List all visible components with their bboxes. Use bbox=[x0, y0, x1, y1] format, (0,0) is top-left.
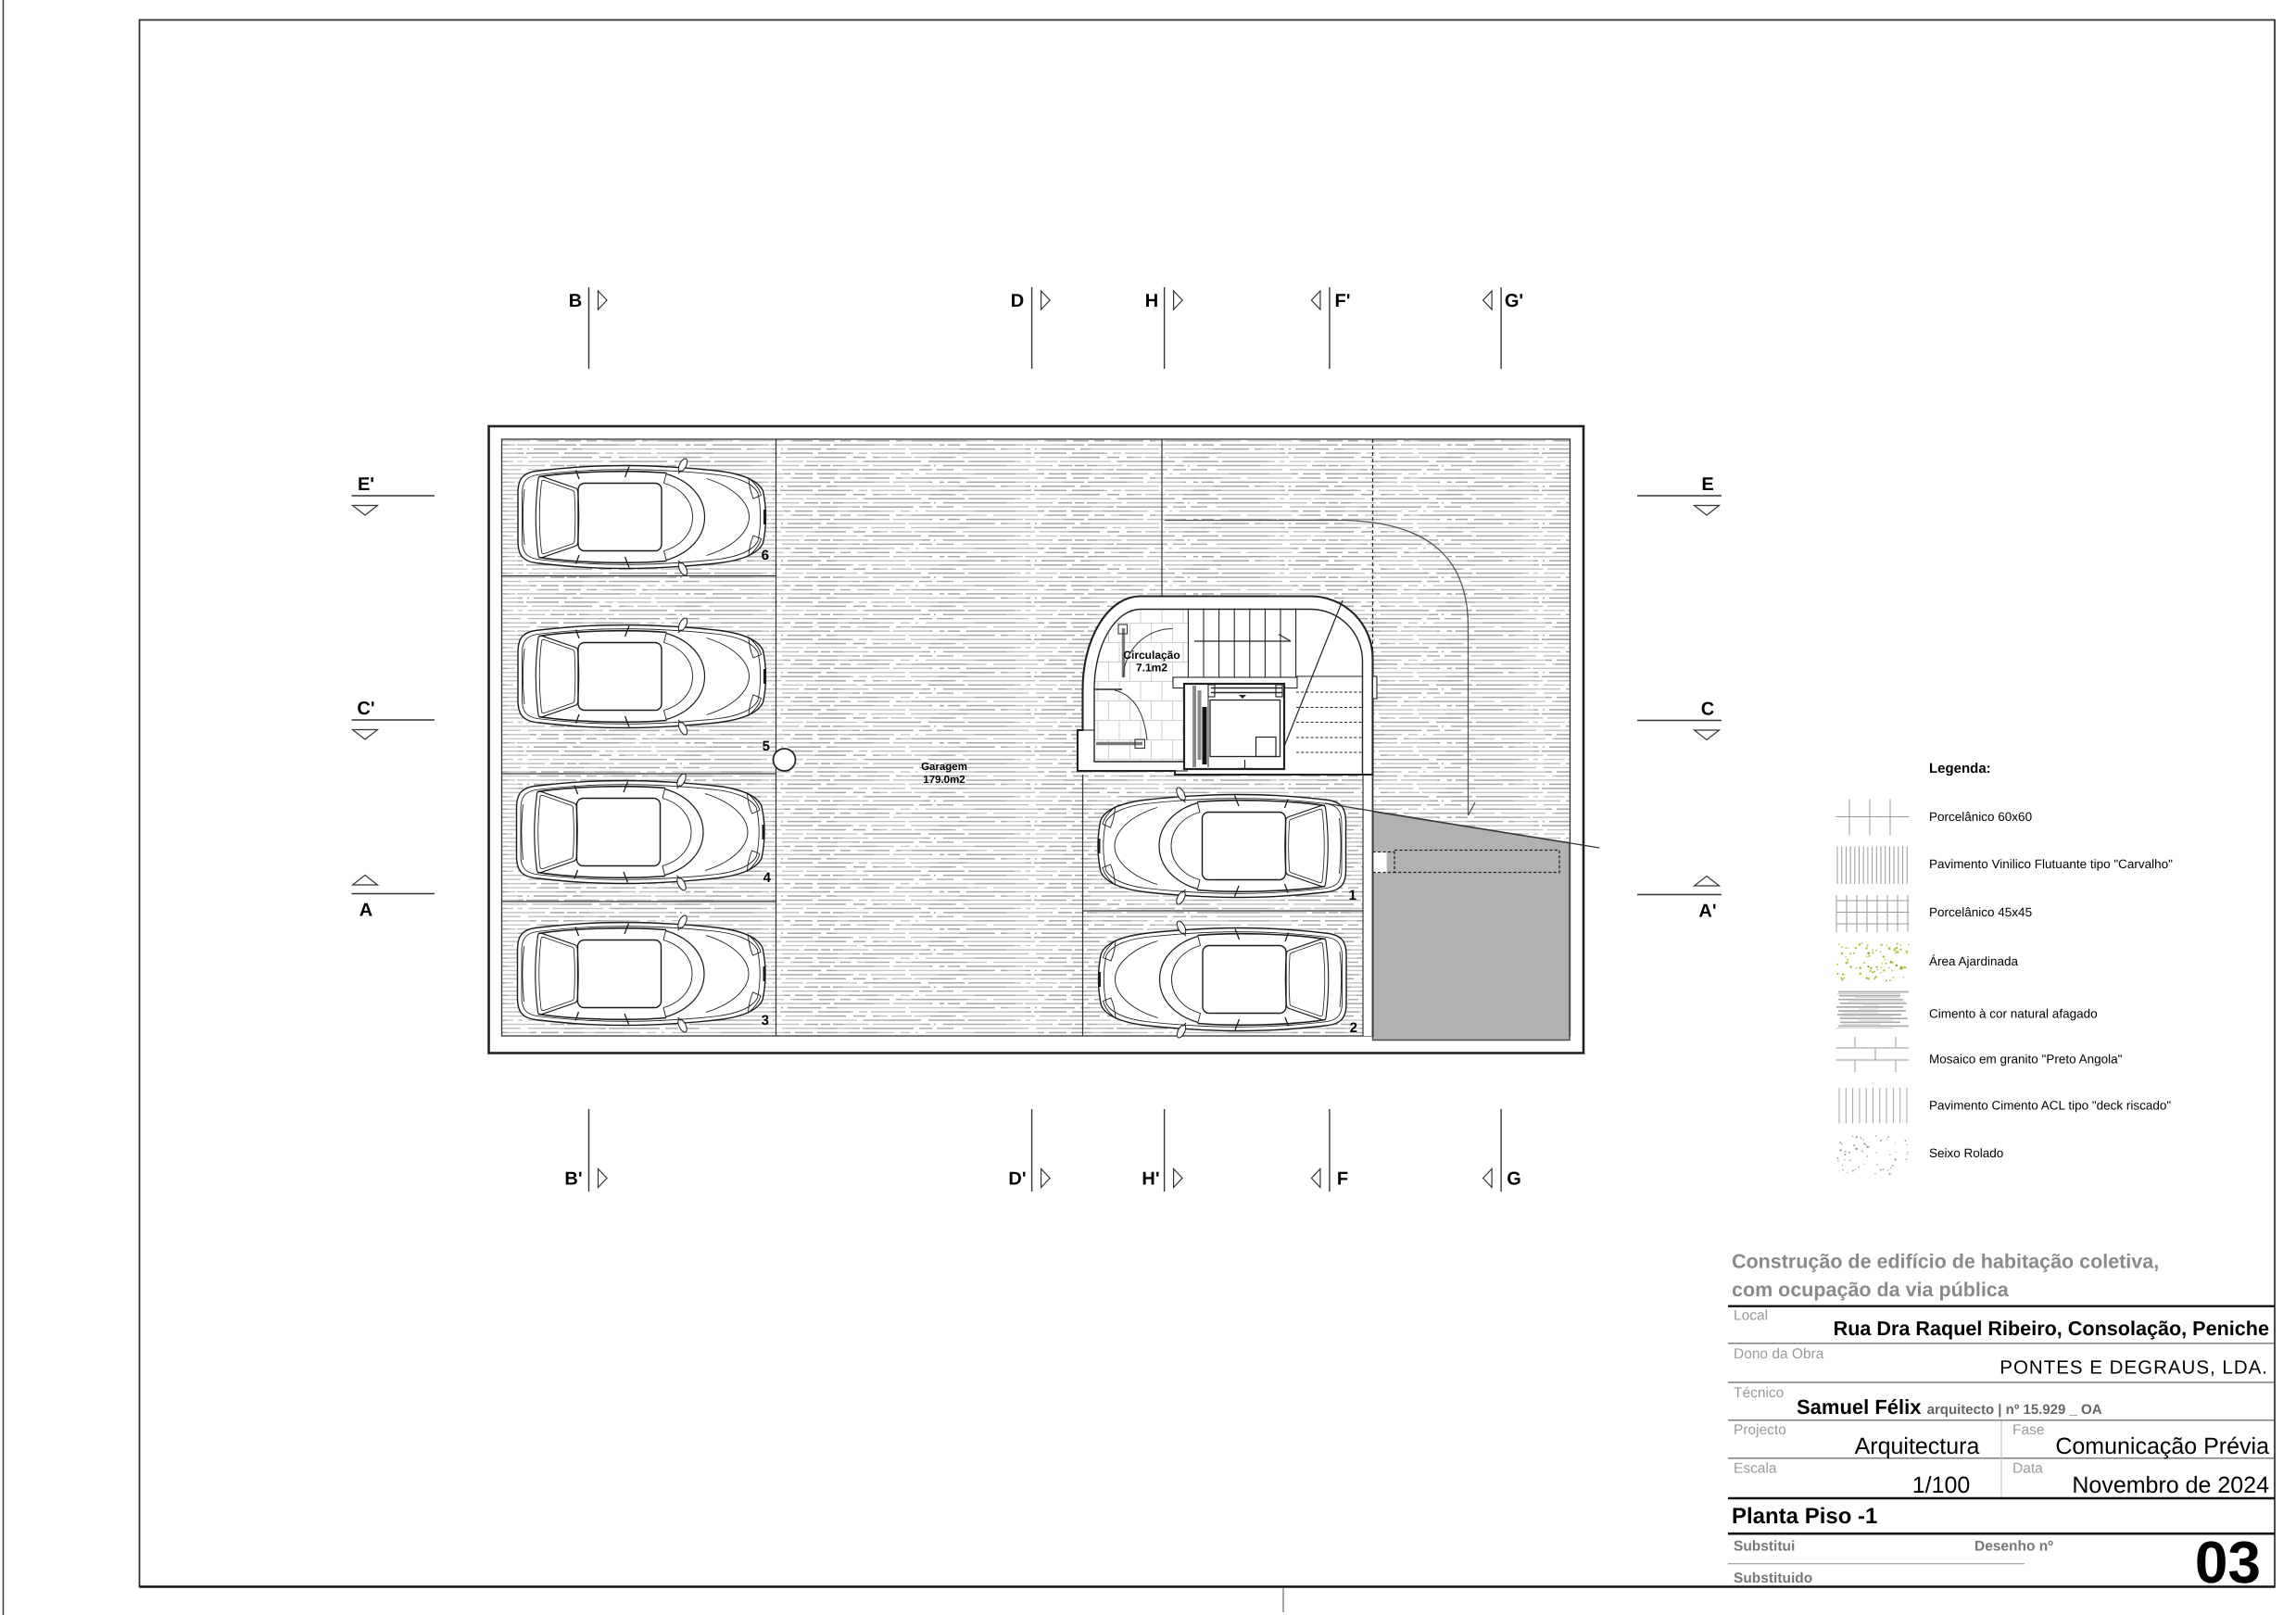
svg-text:Garagem: Garagem bbox=[921, 762, 967, 773]
svg-text:7.1m2: 7.1m2 bbox=[1136, 662, 1167, 675]
svg-text:Rua Dra Raquel Ribeiro, Consol: Rua Dra Raquel Ribeiro, Consolação, Peni… bbox=[1834, 1317, 2269, 1340]
svg-text:Comunicação Prévia: Comunicação Prévia bbox=[2055, 1433, 2269, 1459]
svg-text:F: F bbox=[1337, 1169, 1348, 1190]
svg-text:E: E bbox=[1701, 474, 1713, 495]
svg-text:B': B' bbox=[564, 1169, 582, 1190]
svg-text:Pavimento Cimento ACL tipo "de: Pavimento Cimento ACL tipo "deck riscado… bbox=[1929, 1099, 2171, 1113]
svg-text:Pavimento Vinilico Flutuante t: Pavimento Vinilico Flutuante tipo "Carva… bbox=[1929, 857, 2173, 871]
svg-text:Mosaico em granito "Preto Ango: Mosaico em granito "Preto Angola" bbox=[1929, 1053, 2123, 1066]
svg-text:E': E' bbox=[358, 474, 374, 495]
svg-text:Escala: Escala bbox=[1734, 1460, 1777, 1476]
svg-text:H': H' bbox=[1142, 1169, 1159, 1190]
svg-text:Dono da Obra: Dono da Obra bbox=[1734, 1346, 1824, 1362]
svg-text:Técnico: Técnico bbox=[1734, 1385, 1784, 1401]
svg-text:Local: Local bbox=[1734, 1308, 1768, 1324]
svg-text:Porcelânico 45x45: Porcelânico 45x45 bbox=[1929, 905, 2032, 919]
svg-text:179.0m2: 179.0m2 bbox=[923, 775, 965, 786]
svg-text:D': D' bbox=[1008, 1169, 1026, 1190]
svg-text:1: 1 bbox=[1349, 888, 1356, 903]
svg-text:Seixo Rolado: Seixo Rolado bbox=[1929, 1146, 2003, 1160]
svg-text:Construção de edifício de habi: Construção de edifício de habitação cole… bbox=[1732, 1251, 2159, 1273]
svg-text:G: G bbox=[1507, 1169, 1521, 1190]
svg-text:A': A' bbox=[1698, 902, 1716, 922]
svg-text:6: 6 bbox=[762, 548, 769, 563]
svg-text:F': F' bbox=[1335, 291, 1351, 311]
svg-text:Planta Piso -1: Planta Piso -1 bbox=[1732, 1504, 1877, 1529]
svg-text:5: 5 bbox=[763, 738, 770, 754]
svg-text:Novembro de 2024: Novembro de 2024 bbox=[2072, 1472, 2269, 1498]
svg-text:Data: Data bbox=[2012, 1460, 2043, 1476]
svg-text:Projecto: Projecto bbox=[1734, 1422, 1786, 1438]
svg-text:Cimento à cor natural afagado: Cimento à cor natural afagado bbox=[1929, 1007, 2098, 1021]
svg-text:Substituido: Substituido bbox=[1734, 1571, 1812, 1586]
svg-text:Legenda:: Legenda: bbox=[1929, 761, 1991, 776]
svg-text:C: C bbox=[1701, 700, 1714, 720]
svg-text:A: A bbox=[360, 901, 372, 921]
svg-text:C': C' bbox=[357, 699, 374, 719]
svg-text:Arquitectura: Arquitectura bbox=[1855, 1433, 1980, 1459]
svg-text:Substitui: Substitui bbox=[1734, 1539, 1795, 1555]
svg-text:4: 4 bbox=[763, 870, 772, 886]
svg-text:PONTES E DEGRAUS, LDA.: PONTES E DEGRAUS, LDA. bbox=[2000, 1357, 2268, 1379]
svg-text:H: H bbox=[1145, 291, 1158, 311]
svg-text:Desenho nº: Desenho nº bbox=[1974, 1539, 2053, 1555]
svg-text:B: B bbox=[569, 291, 582, 311]
svg-text:Circulação: Circulação bbox=[1123, 649, 1180, 662]
svg-text:com ocupação da via pública: com ocupação da via pública bbox=[1732, 1279, 2010, 1301]
svg-text:03: 03 bbox=[2195, 1529, 2261, 1596]
svg-text:2: 2 bbox=[1350, 1020, 1357, 1036]
svg-text:D: D bbox=[1011, 291, 1024, 311]
svg-text:Fase: Fase bbox=[2012, 1422, 2044, 1438]
svg-text:1/100: 1/100 bbox=[1912, 1472, 1971, 1498]
svg-text:G': G' bbox=[1505, 291, 1523, 311]
svg-text:Área Ajardinada: Área Ajardinada bbox=[1929, 954, 2019, 968]
svg-text:3: 3 bbox=[762, 1013, 769, 1028]
svg-text:Porcelânico 60x60: Porcelânico 60x60 bbox=[1929, 810, 2032, 824]
